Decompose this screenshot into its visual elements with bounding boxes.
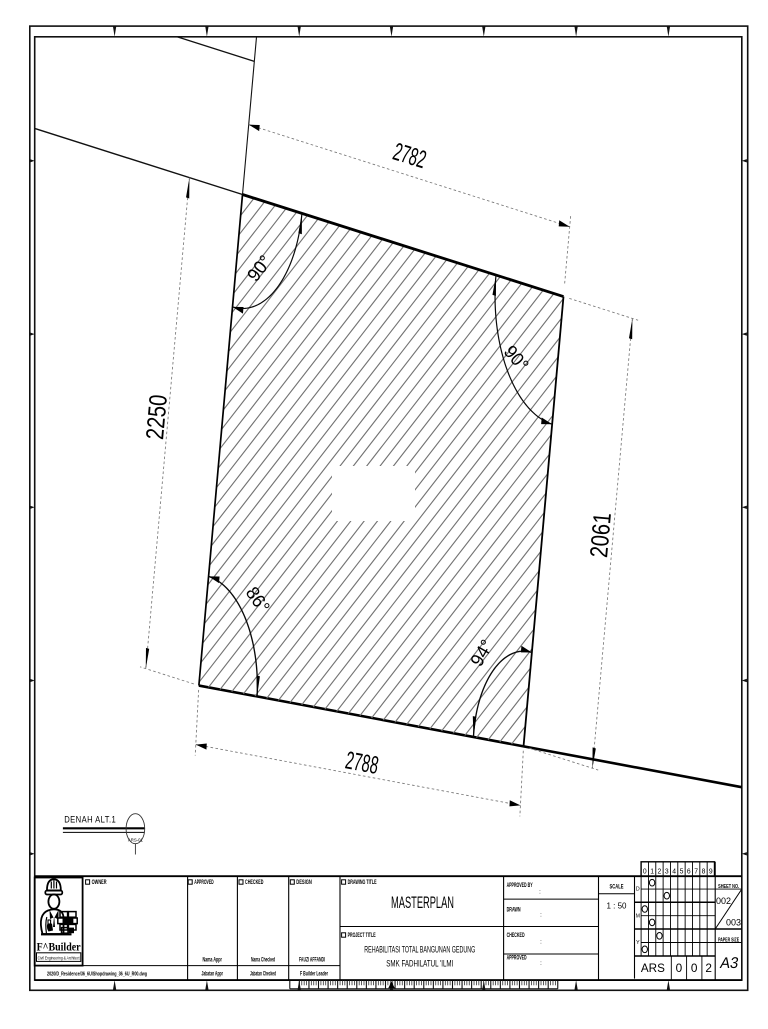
svg-text:FAUZI AFFANDI: FAUZI AFFANDI: [299, 957, 325, 964]
svg-text:2782: 2782: [390, 138, 430, 174]
svg-text:0: 0: [691, 961, 698, 975]
svg-text:MASTERPLAN: MASTERPLAN: [391, 893, 454, 912]
svg-text:0: 0: [676, 961, 683, 975]
svg-text:Nama Appr: Nama Appr: [202, 957, 222, 964]
svg-text:003: 003: [726, 918, 741, 929]
svg-text:F Builder Leader: F Builder Leader: [300, 971, 328, 978]
svg-text:CHECKED: CHECKED: [245, 879, 264, 886]
svg-text:1 : 50: 1 : 50: [607, 901, 627, 911]
svg-text:2788: 2788: [343, 746, 381, 780]
svg-text:SCALE: SCALE: [610, 885, 624, 891]
svg-text::: :: [540, 913, 542, 919]
svg-text:OWNER: OWNER: [92, 879, 107, 886]
svg-text:1: 1: [650, 868, 654, 875]
svg-text:4: 4: [672, 868, 676, 875]
svg-text:Nama Checked: Nama Checked: [251, 957, 275, 964]
svg-text:F^Builder: F^Builder: [37, 942, 81, 954]
svg-text:90°: 90°: [500, 341, 533, 375]
svg-text:REHABILITASI TOTAL BANGUNAN GE: REHABILITASI TOTAL BANGUNAN GEDUNG: [364, 945, 475, 955]
svg-text:A3: A3: [719, 955, 740, 972]
svg-text:2250: 2250: [141, 393, 173, 440]
svg-text:8: 8: [702, 868, 706, 875]
svg-text:PROJECT TITLE: PROJECT TITLE: [348, 932, 376, 939]
svg-text:APPROVED: APPROVED: [507, 955, 527, 961]
svg-text:DRAWING TITLE: DRAWING TITLE: [348, 879, 377, 886]
svg-text:2: 2: [658, 868, 662, 875]
svg-text:M: M: [636, 913, 641, 919]
svg-text:6: 6: [687, 868, 691, 875]
svg-text:ARS: ARS: [641, 961, 665, 975]
svg-text:SHEET NO.: SHEET NO.: [718, 884, 739, 890]
svg-text:DESIGN: DESIGN: [296, 879, 312, 886]
svg-text:DENAH ALT.1: DENAH ALT.1: [64, 815, 116, 825]
svg-text:Civil Engineering & Architect: Civil Engineering & Architect: [38, 956, 81, 961]
svg-text:3: 3: [665, 868, 669, 875]
svg-text:PAPER SIZE: PAPER SIZE: [718, 937, 739, 943]
svg-text:2: 2: [705, 961, 712, 975]
svg-text::: :: [540, 940, 542, 946]
svg-text:Jabatan Appr: Jabatan Appr: [201, 971, 223, 978]
svg-text:D: D: [636, 887, 640, 893]
svg-text:9: 9: [709, 868, 713, 875]
svg-text::: :: [539, 890, 541, 896]
svg-text:DRAWN: DRAWN: [507, 907, 521, 913]
svg-text:APPROVED: APPROVED: [194, 879, 214, 886]
svg-text:2020/D_Residence/36_6U/Shopdra: 2020/D_Residence/36_6U/Shopdrawing_36_6U…: [47, 972, 147, 978]
svg-text:86°: 86°: [242, 583, 275, 617]
svg-text:Y: Y: [636, 940, 640, 946]
svg-text:SMK FADHILATUL 'ILMI: SMK FADHILATUL 'ILMI: [386, 959, 453, 969]
svg-text:0: 0: [643, 868, 647, 875]
svg-text:ARS-01: ARS-01: [128, 838, 143, 843]
svg-text:7: 7: [694, 868, 698, 875]
svg-text:002: 002: [716, 896, 731, 907]
svg-text::: :: [540, 961, 542, 967]
svg-text:2061: 2061: [585, 511, 617, 558]
svg-text:APPROVED BY: APPROVED BY: [507, 883, 533, 889]
svg-text:5: 5: [680, 868, 684, 875]
svg-text:Jabatan Checked: Jabatan Checked: [250, 971, 276, 978]
svg-text:CHECKED: CHECKED: [507, 933, 525, 939]
